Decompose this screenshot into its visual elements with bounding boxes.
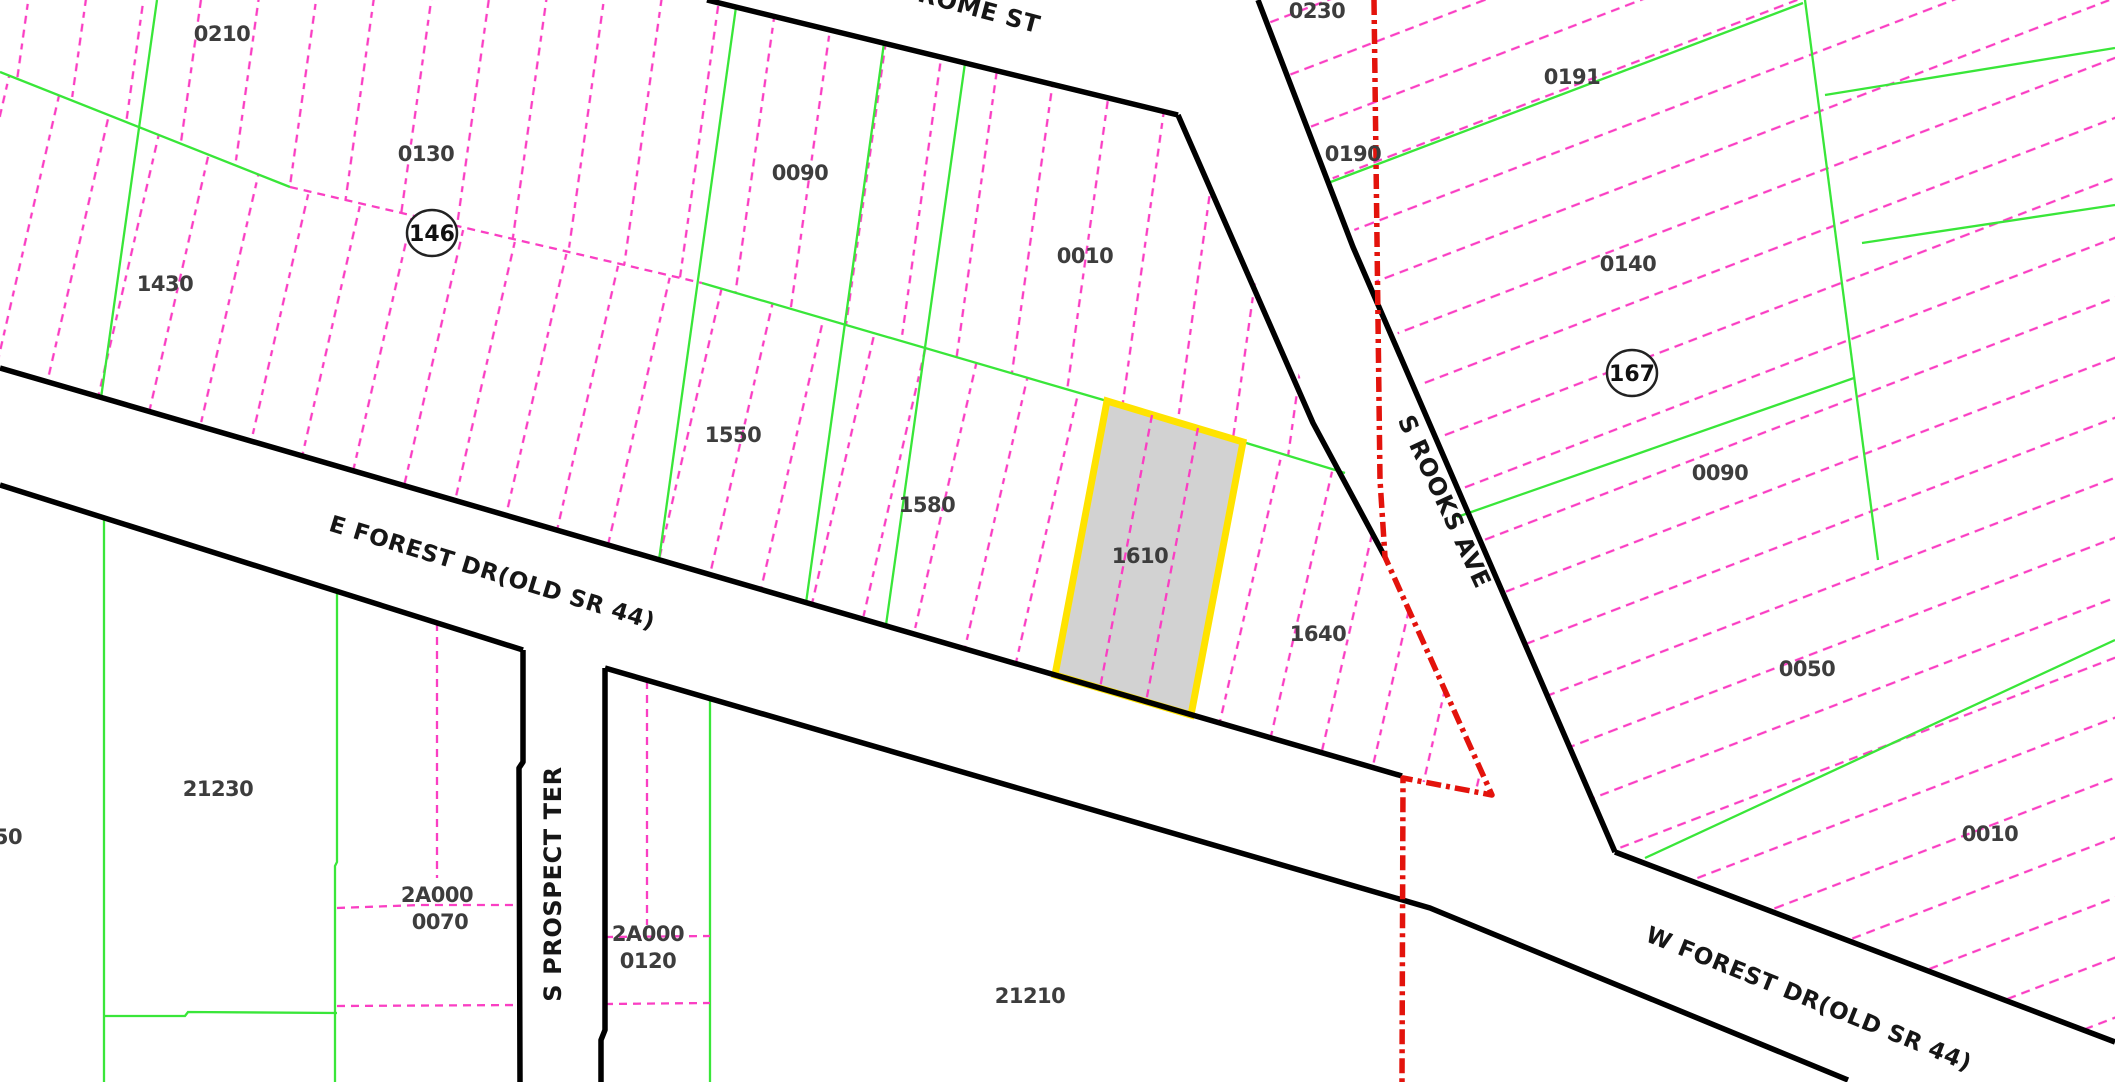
parcel-label-0190-10: 0190 — [1325, 142, 1381, 166]
parcel-label-1550-5: 1550 — [705, 423, 761, 447]
parcel-label-0140-12: 0140 — [1600, 252, 1656, 276]
parcel-label-0010-4: 0010 — [1057, 244, 1113, 268]
parcel-label-1580-6: 1580 — [899, 493, 955, 517]
parcel-label-0230-9: 0230 — [1289, 0, 1345, 23]
s-prospect-west-edge — [519, 650, 523, 1082]
s-prospect-east-edge — [601, 668, 605, 1082]
parcel-label-0050-14: 0050 — [1779, 657, 1835, 681]
block-number-167: 167 — [1609, 362, 1655, 387]
parcel-label-1640-8: 1640 — [1290, 622, 1346, 646]
parcel-label-0070-20: 0070 — [412, 910, 468, 934]
parcel-label-50-18: 50 — [0, 825, 22, 849]
parcel-block-hatching — [0, 0, 2115, 1042]
parcel-map-viewport: 146167 021001301430009000101550158016101… — [0, 0, 2115, 1082]
lot-pink-3 — [337, 1005, 521, 1006]
block-number-146: 146 — [409, 222, 455, 247]
street-label-jerome-st: ROME ST — [915, 0, 1043, 39]
parcel-label-0191-11: 0191 — [1544, 65, 1600, 89]
parcel-label-1430-2: 1430 — [137, 272, 193, 296]
parcel-label-1610-7: 1610 — [1112, 544, 1168, 568]
street-label-s-prospect-ter: S PROSPECT TER — [539, 766, 567, 1001]
parcel-label-0120-22: 0120 — [620, 949, 676, 973]
parcel-label-0010-15: 0010 — [1962, 822, 2018, 846]
hatched-block-3 — [1258, 0, 2115, 1042]
parcel-label-0210-0: 0210 — [194, 22, 250, 46]
parcel-label-2A000-21: 2A000 — [612, 922, 684, 946]
lot-green-7 — [104, 1012, 337, 1016]
parcel-label-21210-17: 21210 — [995, 984, 1066, 1008]
lot-pink-6 — [605, 1003, 710, 1004]
parcel-label-0090-3: 0090 — [772, 161, 828, 185]
parcel-label-2A000-19: 2A000 — [401, 883, 473, 907]
lot-green-6 — [335, 591, 337, 1082]
parcel-label-21230-16: 21230 — [183, 777, 254, 801]
parcel-map: 146167 021001301430009000101550158016101… — [0, 0, 2115, 1082]
parcel-label-0130-1: 0130 — [398, 142, 454, 166]
parcel-label-0090-13: 0090 — [1692, 461, 1748, 485]
